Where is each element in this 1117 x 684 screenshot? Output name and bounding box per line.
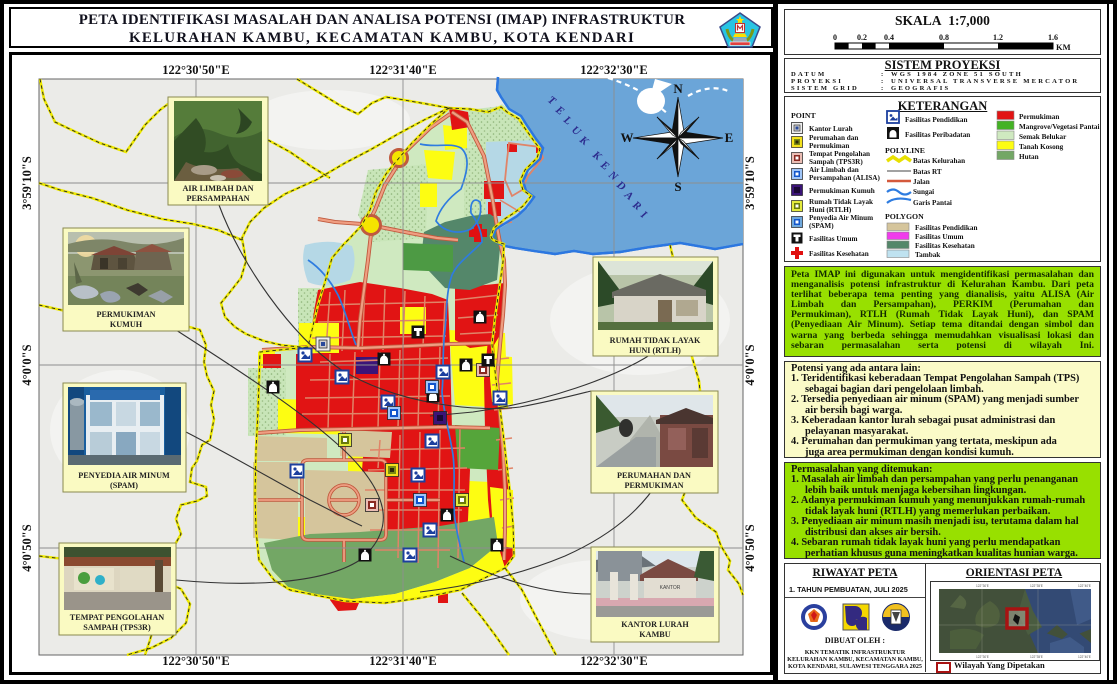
svg-text:Fasilitas Umum: Fasilitas Umum (915, 233, 964, 241)
svg-text:Batas RT: Batas RT (913, 168, 942, 176)
svg-text:1.2: 1.2 (993, 33, 1003, 42)
svg-text:Fasilitas Kesehatan: Fasilitas Kesehatan (809, 250, 869, 258)
svg-text:PERUMAHAN DAN: PERUMAHAN DAN (617, 471, 691, 480)
svg-text:S: S (674, 179, 681, 194)
svg-text:4°0'50"S: 4°0'50"S (743, 524, 757, 571)
svg-text:Kantor Lurah: Kantor Lurah (809, 125, 853, 133)
svg-text:122°30'E: 122°30'E (976, 584, 989, 588)
svg-text:Fasilitas Umum: Fasilitas Umum (809, 235, 858, 243)
svg-text:1.6: 1.6 (1048, 33, 1058, 42)
svg-text:Fasilitas Kesehatan: Fasilitas Kesehatan (915, 242, 975, 250)
svg-text:PERMUKIMAN: PERMUKIMAN (624, 481, 683, 490)
svg-text:Tanah Kosong: Tanah Kosong (1019, 143, 1064, 151)
svg-text:Tempat Pengolahan: Tempat Pengolahan (809, 150, 870, 158)
svg-text:N: N (673, 81, 683, 96)
svg-text:SAMPAH (TPS3R): SAMPAH (TPS3R) (83, 623, 151, 632)
svg-text:Sungai: Sungai (913, 188, 934, 196)
svg-text:RUMAH TIDAK LAYAK: RUMAH TIDAK LAYAK (610, 336, 701, 345)
svg-text:KANTOR LURAH: KANTOR LURAH (621, 620, 689, 629)
svg-text:(SPAM): (SPAM) (110, 481, 138, 490)
svg-text:Persampahan (ALISA): Persampahan (ALISA) (809, 174, 880, 182)
svg-text:122°30'E: 122°30'E (976, 655, 989, 659)
svg-text:KANTOR: KANTOR (660, 585, 681, 591)
svg-text:PERSAMPAHAN: PERSAMPAHAN (186, 194, 249, 203)
svg-text:122°30'50"E: 122°30'50"E (162, 63, 230, 77)
svg-text:4°0'0"S: 4°0'0"S (20, 344, 34, 385)
svg-text:Permukiman: Permukiman (1019, 113, 1059, 121)
svg-text:Batas Kelurahan: Batas Kelurahan (913, 157, 965, 165)
svg-text:Permukiman: Permukiman (809, 142, 849, 150)
svg-text:Garis Pantai: Garis Pantai (913, 199, 952, 207)
svg-text:0.4: 0.4 (884, 33, 894, 42)
svg-text:0.2: 0.2 (857, 33, 867, 42)
svg-text:POLYGON: POLYGON (885, 212, 924, 221)
svg-text:PENYEDIA AIR MINUM: PENYEDIA AIR MINUM (78, 471, 170, 480)
svg-text:4°0'50"S: 4°0'50"S (20, 524, 34, 571)
svg-text:HUNI (RTLH): HUNI (RTLH) (629, 346, 681, 355)
svg-text:Jalan: Jalan (913, 178, 930, 186)
svg-text:Penyedia Air Minum: Penyedia Air Minum (809, 214, 873, 222)
svg-text:122°35'E: 122°35'E (1030, 584, 1043, 588)
svg-text:Fasilitas Pendidikan: Fasilitas Pendidikan (905, 116, 968, 124)
svg-text:122°35'E: 122°35'E (1030, 655, 1043, 659)
svg-text:4°0'0"S: 4°0'0"S (743, 344, 757, 385)
svg-text:122°31'40"E: 122°31'40"E (369, 654, 437, 668)
svg-text:KM: KM (1056, 42, 1071, 52)
svg-text:KUMUH: KUMUH (110, 320, 143, 329)
svg-text:PERMUKIMAN: PERMUKIMAN (96, 310, 155, 319)
svg-text:Permukiman Kumuh: Permukiman Kumuh (809, 187, 875, 195)
svg-text:KAMBU: KAMBU (639, 630, 670, 639)
svg-text:Fasilitas Pendidikan: Fasilitas Pendidikan (915, 224, 978, 232)
svg-text:3°59'10"S: 3°59'10"S (743, 156, 757, 210)
svg-text:POINT: POINT (791, 111, 816, 120)
svg-text:E: E (725, 130, 734, 145)
svg-text:122°40'E: 122°40'E (1078, 584, 1091, 588)
svg-text:0: 0 (833, 33, 837, 42)
svg-text:Mangrove/Vegetasi Pantai: Mangrove/Vegetasi Pantai (1019, 123, 1099, 131)
svg-text:Perumahan dan: Perumahan dan (809, 134, 858, 142)
svg-text:Air Limbah dan: Air Limbah dan (809, 166, 859, 174)
svg-text:W: W (621, 130, 634, 145)
svg-text:TEMPAT PENGOLAHAN: TEMPAT PENGOLAHAN (70, 613, 164, 622)
svg-text:Tambak: Tambak (915, 251, 940, 259)
svg-text:Sampah (TPS3R): Sampah (TPS3R) (809, 158, 863, 166)
svg-text:Fasilitas Peribadatan: Fasilitas Peribadatan (905, 131, 970, 139)
svg-text:3°59'10"S: 3°59'10"S (20, 156, 34, 210)
svg-text:(SPAM): (SPAM) (809, 222, 834, 230)
svg-text:122°31'40"E: 122°31'40"E (369, 63, 437, 77)
svg-text:POLYLINE: POLYLINE (885, 146, 925, 155)
svg-text:122°32'30"E: 122°32'30"E (580, 63, 648, 77)
svg-text:Huni (RTLH): Huni (RTLH) (809, 206, 852, 214)
svg-text:0.8: 0.8 (939, 33, 949, 42)
svg-text:Semak Belukar: Semak Belukar (1019, 133, 1067, 141)
svg-text:AIR LIMBAH DAN: AIR LIMBAH DAN (183, 184, 254, 193)
svg-text:Hutan: Hutan (1019, 153, 1039, 161)
svg-text:122°30'50"E: 122°30'50"E (162, 654, 230, 668)
svg-text:Rumah Tidak Layak: Rumah Tidak Layak (809, 198, 873, 206)
svg-text:122°32'30"E: 122°32'30"E (580, 654, 648, 668)
svg-text:122°40'E: 122°40'E (1078, 655, 1091, 659)
